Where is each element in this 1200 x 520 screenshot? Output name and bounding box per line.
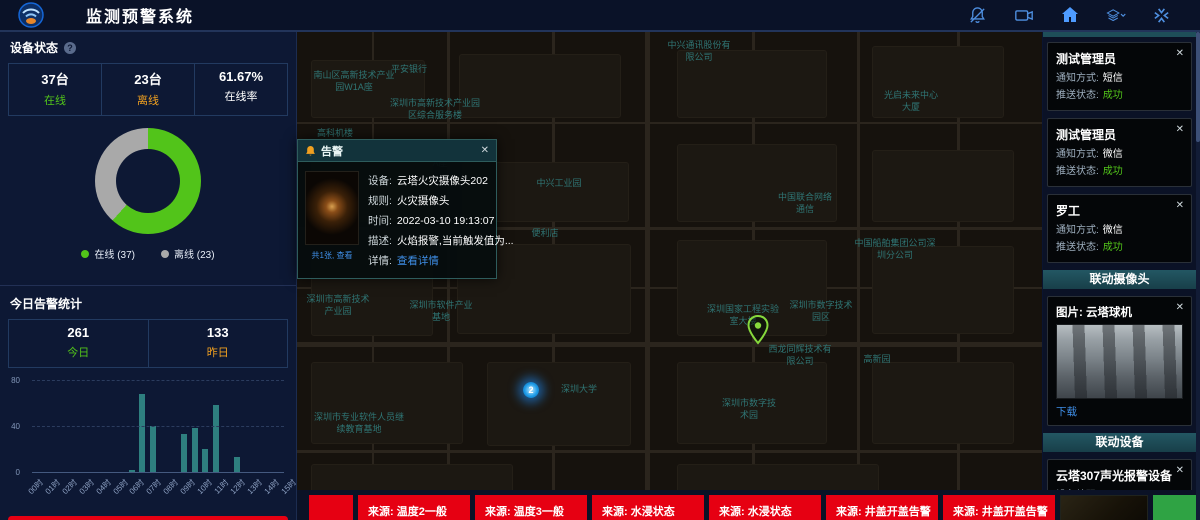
x-tick-label: 02时	[60, 477, 80, 497]
x-tick-label: 15时	[279, 477, 297, 497]
camera-image-title: 图片: 云塔球机	[1056, 304, 1183, 320]
map-label: 中兴工业园	[529, 178, 589, 190]
offline-label: 离线	[102, 92, 194, 108]
notify-recipient-name: 罗工	[1056, 202, 1183, 219]
location-pin-icon[interactable]	[745, 314, 771, 351]
hourly-bar-chart: 00时01时02时03时04时05时06时07时08时09时10时11时12时1…	[24, 380, 286, 502]
detail-label: 设备:	[368, 175, 392, 187]
notify-row-label: 通知方式:	[1056, 149, 1099, 160]
legend-dot	[161, 250, 169, 258]
detail-value: 火灾摄像头	[397, 195, 450, 207]
alarm-thumb-col: 共1张, 查看	[305, 171, 359, 271]
map-road	[297, 450, 1042, 453]
today-alarm-header: 今日告警统计	[0, 285, 296, 317]
map-road	[297, 122, 1042, 124]
page-title: 监测预警系统	[86, 3, 194, 27]
header-toolbar	[968, 5, 1172, 25]
legend-label: 离线 (23)	[174, 246, 215, 261]
alarm-popup: 告警 ✕ 共1张, 查看 设备:云塔火灾摄像头202规则:火灾摄像头时间:202…	[297, 139, 497, 279]
stat-online: 37台 在线	[9, 64, 101, 115]
online-label: 在线	[9, 92, 101, 108]
detail-label: 规则:	[368, 195, 392, 207]
close-icon[interactable]: ✕	[1176, 302, 1184, 313]
map-block	[487, 362, 631, 446]
alarm-snapshot-image[interactable]	[305, 171, 359, 245]
notify-row-value: 成功	[1103, 90, 1123, 101]
linked-device-header: 联动设备	[1043, 433, 1196, 452]
layers-icon[interactable]	[1106, 5, 1126, 25]
yesterday-count: 133	[149, 325, 288, 340]
bell-off-icon[interactable]	[968, 5, 988, 25]
x-tick-label: 12时	[228, 477, 248, 497]
right-notification-panel: 测试管理员✕通知方式:短信推送状态:成功测试管理员✕通知方式:微信推送状态:成功…	[1043, 32, 1196, 490]
today-alarm-stats: 261 今日 133 昨日	[8, 319, 288, 368]
alarm-detail-row: 设备:云塔火灾摄像头202	[368, 171, 514, 191]
map-label: 深圳市高新技术产业园	[305, 294, 371, 317]
notification-card: 测试管理员✕通知方式:短信推送状态:成功	[1047, 42, 1192, 111]
download-link[interactable]: 下载	[1056, 404, 1183, 419]
stat-offline: 23台 离线	[101, 64, 194, 115]
scrollbar-thumb[interactable]	[1196, 32, 1200, 142]
app-logo-icon	[18, 2, 44, 28]
close-icon[interactable]: ✕	[1176, 124, 1184, 135]
unhandled-progress-bar	[8, 516, 288, 520]
device-donut-chart	[95, 128, 201, 234]
map-label: 深圳市软件产业基地	[409, 300, 473, 323]
notification-card: 罗工✕通知方式:微信推送状态:成功	[1047, 194, 1192, 263]
map-label: 深圳市数字技术园区	[789, 300, 853, 323]
stat-today: 261 今日	[9, 320, 148, 367]
detail-label: 时间:	[368, 215, 392, 227]
stat-yesterday: 133 昨日	[148, 320, 288, 367]
alert-camera-thumbnail[interactable]	[1060, 495, 1148, 520]
alert-tile[interactable]: 来源: 井盖开盖告警	[943, 495, 1055, 520]
gridline	[32, 380, 284, 381]
alert-tile[interactable]: 来源: 水浸状态	[592, 495, 704, 520]
alarm-popup-title: 告警	[321, 143, 343, 159]
map-label: 南山区高新技术产业园W1A座	[311, 70, 397, 93]
app-header: 监测预警系统	[0, 0, 1200, 32]
alarm-popup-body: 共1张, 查看 设备:云塔火灾摄像头202规则:火灾摄像头时间:2022-03-…	[298, 162, 496, 278]
notify-row-value: 成功	[1103, 242, 1123, 253]
home-icon[interactable]	[1060, 5, 1080, 25]
x-tick-label: 04时	[94, 477, 114, 497]
today-count: 261	[9, 325, 148, 340]
map-road	[645, 32, 650, 520]
notification-card: 测试管理员✕通知方式:微信推送状态:成功	[1047, 118, 1192, 187]
map-label: 中国联合网络通信	[775, 192, 835, 215]
map-label: 深圳市数字技术园	[721, 398, 777, 421]
device-donut-wrap: 在线 (37)离线 (23)	[0, 128, 296, 261]
hourly-x-axis: 00时01时02时03时04时05时06时07时08时09时10时11时12时1…	[28, 475, 286, 486]
bar	[213, 405, 219, 472]
legend-item: 在线 (37)	[81, 246, 135, 261]
online-count: 37台	[9, 69, 101, 88]
vertical-scrollbar[interactable]	[1196, 32, 1200, 520]
notify-row-label: 通知方式:	[1056, 225, 1099, 236]
alert-green-thumbnail[interactable]	[1153, 495, 1199, 520]
legend-item: 离线 (23)	[161, 246, 215, 261]
notify-row: 推送状态:成功	[1056, 87, 1183, 104]
online-rate: 61.67%	[195, 69, 287, 84]
notify-row-label: 通知方式:	[1056, 73, 1099, 84]
notify-row: 推送状态:成功	[1056, 163, 1183, 180]
notify-row-label: 推送状态:	[1056, 242, 1099, 253]
notification-section-strip	[1043, 32, 1196, 37]
device-status-title: 设备状态	[10, 39, 58, 56]
stat-online-rate: 61.67% 在线率	[194, 64, 287, 115]
camera-snapshot-image[interactable]	[1056, 324, 1183, 399]
x-tick-label: 09时	[178, 477, 198, 497]
map-label: 高科机楼	[311, 128, 359, 140]
notify-row-value: 微信	[1103, 225, 1123, 236]
map-label: 深圳市高新技术产业园区综合服务楼	[389, 98, 481, 121]
alarm-snapshot-caption[interactable]: 共1张, 查看	[305, 250, 359, 261]
detail-value: 云塔火灾摄像头202	[397, 175, 488, 187]
close-icon[interactable]: ✕	[481, 145, 489, 156]
map-label: 便利店	[525, 228, 565, 240]
view-details-link[interactable]: 查看详情	[397, 255, 439, 267]
notify-row-label: 推送状态:	[1056, 90, 1099, 101]
bottom-alert-ticker: 来源: 温度2一般来源: 温度3一般来源: 水浸状态来源: 水浸状态来源: 井盖…	[297, 490, 1200, 520]
x-tick-label: 13时	[245, 477, 265, 497]
x-tick-label: 08时	[161, 477, 181, 497]
device-status-stats: 37台 在线 23台 离线 61.67% 在线率	[8, 63, 288, 116]
map-block	[872, 150, 1014, 222]
video-camera-icon[interactable]	[1014, 5, 1034, 25]
alert-tile[interactable]: 来源: 温度3一般	[475, 495, 587, 520]
x-tick-label: 14时	[262, 477, 282, 497]
alarm-detail-row: 规则:火灾摄像头	[368, 191, 514, 211]
alert-tile[interactable]: 来源: 温度2一般	[358, 495, 470, 520]
map-label: 深圳大学	[555, 384, 603, 396]
legend-label: 在线 (37)	[94, 246, 135, 261]
bar	[181, 434, 187, 472]
bar	[192, 428, 198, 472]
notify-row-label: 推送状态:	[1056, 166, 1099, 177]
alarm-bell-icon	[305, 145, 316, 157]
alarm-detail-row: 描述:火焰报警,当前触发值为...	[368, 231, 514, 251]
map-label: 光启未来中心大厦	[881, 90, 941, 113]
device-status-header: 设备状态 ?	[0, 32, 296, 61]
linked-device-card: 云塔307声光报警设备✕设备编码:ffffff100001ab6c调用服务:报警…	[1047, 459, 1192, 490]
bar	[129, 470, 135, 472]
map-label: 西龙同辉技术有限公司	[767, 344, 833, 367]
notify-row-value: 微信	[1103, 149, 1123, 160]
bar	[150, 426, 156, 472]
y-tick-label: 0	[8, 468, 20, 477]
alert-tile[interactable]: 来源: 井盖开盖告警	[826, 495, 938, 520]
x-tick-label: 03时	[77, 477, 97, 497]
cluster-marker[interactable]: 2	[523, 382, 539, 398]
left-stats-panel: 设备状态 ? 37台 在线 23台 离线 61.67% 在线率 在线 (37)离…	[0, 32, 297, 520]
help-icon[interactable]: ?	[64, 42, 76, 54]
linked-device-cards: 云塔307声光报警设备✕设备编码:ffffff100001ab6c调用服务:报警…	[1043, 459, 1196, 490]
offline-count: 23台	[102, 69, 194, 88]
notify-row: 通知方式:微信	[1056, 146, 1183, 163]
notify-row: 通知方式:短信	[1056, 70, 1183, 87]
yesterday-label: 昨日	[149, 344, 288, 360]
y-tick-label: 80	[8, 376, 20, 385]
alarm-detail-row: 详情:查看详情	[368, 251, 514, 271]
monitoring-dashboard: 监测预警系统 设备状态 ? 37台	[0, 0, 1200, 520]
detail-label: 描述:	[368, 235, 392, 247]
x-tick-label: 00时	[26, 477, 46, 497]
linked-camera-card: 图片: 云塔球机 ✕ 下载	[1047, 296, 1192, 426]
y-tick-label: 40	[8, 422, 20, 431]
notification-cards: 测试管理员✕通知方式:短信推送状态:成功测试管理员✕通知方式:微信推送状态:成功…	[1043, 42, 1196, 263]
detail-value: 2022-03-10 19:13:07	[397, 215, 495, 227]
alert-tile[interactable]	[309, 495, 353, 520]
map-label: 中国船舶集团公司深圳分公司	[853, 238, 937, 261]
map-label: 高新园	[857, 354, 897, 366]
legend-dot	[81, 250, 89, 258]
map-label: 中兴通讯股份有限公司	[667, 40, 731, 63]
map-road	[857, 32, 860, 520]
close-icon[interactable]: ✕	[1176, 200, 1184, 211]
x-tick-label: 01时	[43, 477, 63, 497]
close-icon[interactable]: ✕	[1176, 48, 1184, 59]
detail-label: 详情:	[368, 255, 392, 267]
today-alarm-title: 今日告警统计	[10, 295, 82, 312]
bar	[139, 394, 145, 472]
map-block	[459, 54, 621, 118]
bar	[234, 457, 240, 472]
notify-recipient-name: 测试管理员	[1056, 50, 1183, 67]
detail-value: 火焰报警,当前触发值为...	[397, 235, 514, 247]
notify-row: 通知方式:微信	[1056, 222, 1183, 239]
today-label: 今日	[9, 344, 148, 360]
notify-row-value: 成功	[1103, 166, 1123, 177]
map-block	[872, 362, 1014, 444]
donut-legend: 在线 (37)离线 (23)	[0, 246, 296, 261]
notify-row: 推送状态:成功	[1056, 239, 1183, 256]
alarm-popup-header: 告警 ✕	[298, 140, 496, 162]
bar	[202, 449, 208, 472]
gridline	[32, 426, 284, 427]
alarm-detail-row: 时间:2022-03-10 19:13:07	[368, 211, 514, 231]
notify-recipient-name: 测试管理员	[1056, 126, 1183, 143]
alarm-detail-rows: 设备:云塔火灾摄像头202规则:火灾摄像头时间:2022-03-10 19:13…	[359, 171, 514, 271]
close-icon[interactable]: ✕	[1176, 465, 1184, 476]
map-label: 深圳市专业软件人员继续教育基地	[311, 412, 407, 435]
device-name: 云塔307声光报警设备	[1056, 467, 1183, 484]
online-rate-label: 在线率	[195, 88, 287, 104]
fullscreen-collapse-icon[interactable]	[1152, 5, 1172, 25]
alert-tile[interactable]: 来源: 水浸状态	[709, 495, 821, 520]
map-road	[297, 342, 1042, 347]
linked-camera-header: 联动摄像头	[1043, 270, 1196, 289]
notify-row-value: 短信	[1103, 73, 1123, 84]
